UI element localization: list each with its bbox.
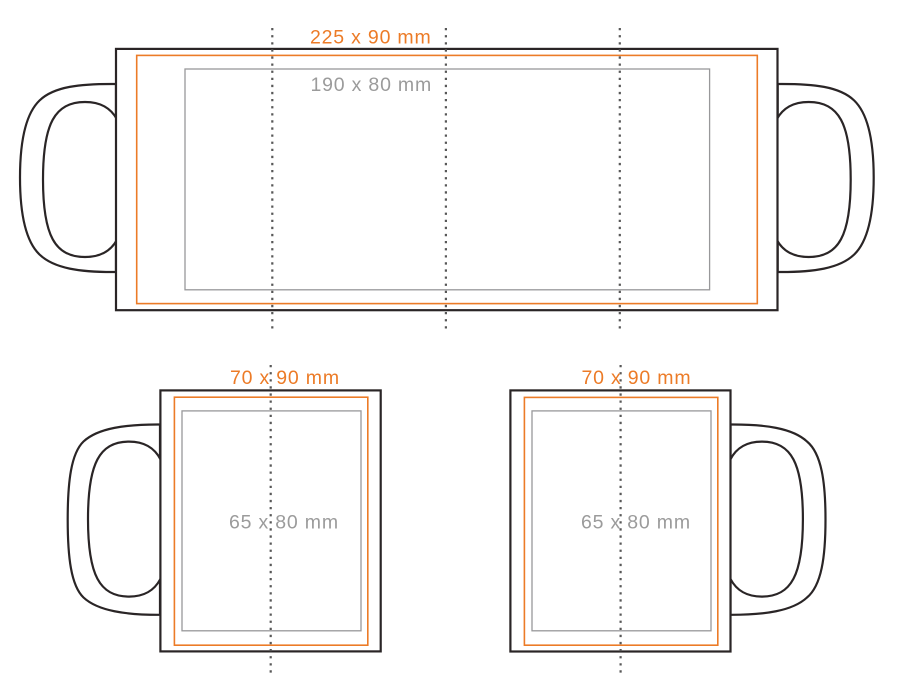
svg-text:65 x 80 mm: 65 x 80 mm bbox=[581, 511, 691, 533]
svg-text:190 x 80 mm: 190 x 80 mm bbox=[311, 74, 433, 96]
svg-text:70 x 90 mm: 70 x 90 mm bbox=[582, 367, 692, 389]
svg-text:65 x 80 mm: 65 x 80 mm bbox=[229, 511, 339, 533]
svg-text:70 x 90 mm: 70 x 90 mm bbox=[230, 367, 340, 389]
svg-text:225 x 90 mm: 225 x 90 mm bbox=[310, 26, 432, 48]
